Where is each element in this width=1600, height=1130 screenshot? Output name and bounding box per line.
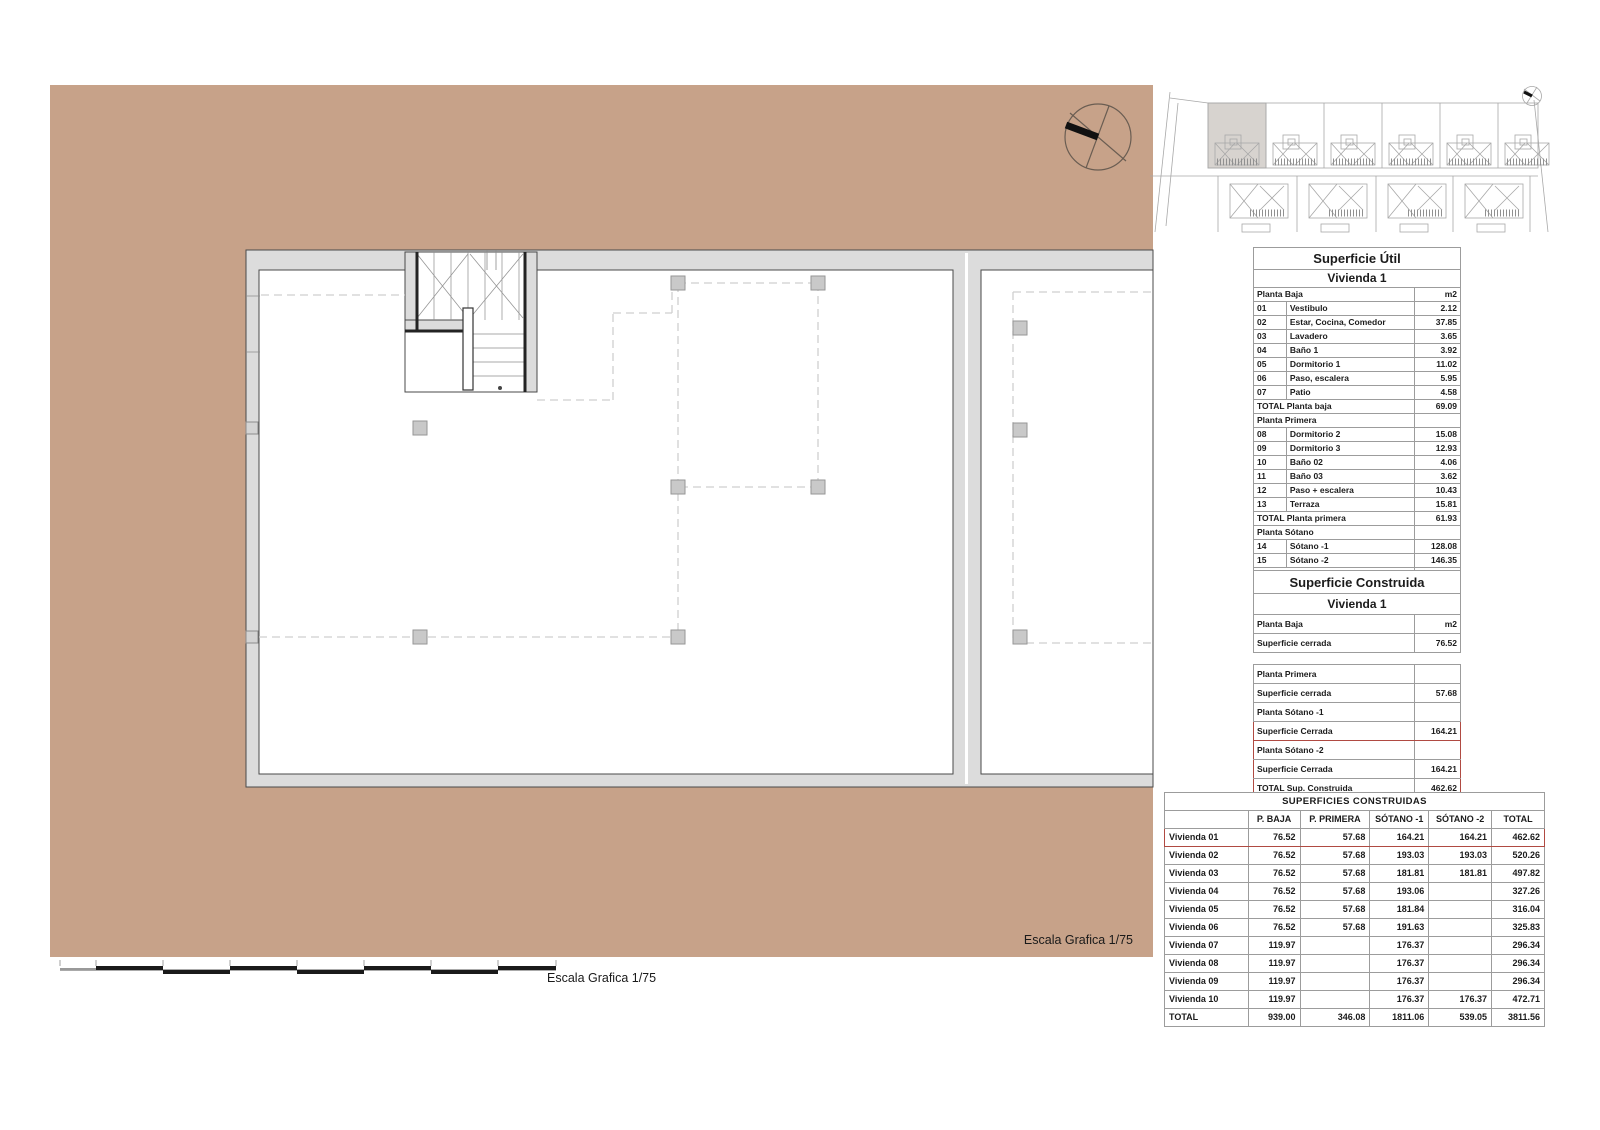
- table-cell: 1811.06: [1370, 1009, 1429, 1027]
- table-cell: P. BAJA: [1248, 811, 1300, 829]
- table-row: Planta Bajam2: [1254, 288, 1461, 302]
- table-cell: 3.62: [1415, 470, 1461, 484]
- table-cell: 01: [1254, 302, 1287, 316]
- table-cell: 539.05: [1429, 1009, 1492, 1027]
- table-row: 06Paso, escalera5.95: [1254, 372, 1461, 386]
- table-cell: Vivienda 1: [1254, 594, 1461, 615]
- table-row: 13Terraza15.81: [1254, 498, 1461, 512]
- stair-handrail: [463, 308, 473, 390]
- table-cell: 119.97: [1248, 955, 1300, 973]
- table-row: [1254, 653, 1461, 665]
- table-cell: 181.81: [1370, 865, 1429, 883]
- table-cell: 57.68: [1300, 901, 1370, 919]
- table-cell: 76.52: [1248, 883, 1300, 901]
- table-row: 05Dormitorio 111.02: [1254, 358, 1461, 372]
- table-cell: [1300, 955, 1370, 973]
- table-cell: 11.02: [1415, 358, 1461, 372]
- table-row: Vivienda 0276.5257.68193.03193.03520.26: [1165, 847, 1545, 865]
- table-cell: 11: [1254, 470, 1287, 484]
- table-cell: Paso, escalera: [1286, 372, 1414, 386]
- table-row: Planta Sótano -1: [1254, 703, 1461, 722]
- table-cell: Superficie Construida: [1254, 571, 1461, 594]
- table-row: Vivienda 0176.5257.68164.21164.21462.62: [1165, 829, 1545, 847]
- table-cell: 327.26: [1492, 883, 1545, 901]
- table-cell: SÓTANO -1: [1370, 811, 1429, 829]
- table-cell: Patio: [1286, 386, 1414, 400]
- scale-label-inner: Escala Grafica 1/75: [1003, 933, 1133, 947]
- table-cell: 61.93: [1415, 512, 1461, 526]
- table-row: Superficie Útil: [1254, 248, 1461, 270]
- table-cell: TOTAL Planta primera: [1254, 512, 1415, 526]
- table-cell: [1429, 973, 1492, 991]
- table-cell: Baño 1: [1286, 344, 1414, 358]
- table-cell: [1415, 414, 1461, 428]
- table-cell: SUPERFICIES CONSTRUIDAS: [1165, 793, 1545, 811]
- table-cell: 76.52: [1248, 901, 1300, 919]
- table-cell: Planta Sótano -1: [1254, 703, 1415, 722]
- table-cell: 462.62: [1492, 829, 1545, 847]
- table-cell: 316.04: [1492, 901, 1545, 919]
- table-cell: 176.37: [1370, 937, 1429, 955]
- table-cell: 191.63: [1370, 919, 1429, 937]
- table-cell: 176.37: [1370, 955, 1429, 973]
- table-cell: [1165, 811, 1249, 829]
- table-cell: [1429, 919, 1492, 937]
- highlighted-unit: [1208, 103, 1266, 168]
- table-cell: Paso + escalera: [1286, 484, 1414, 498]
- table-cell: 37.85: [1415, 316, 1461, 330]
- table-cell: m2: [1415, 615, 1461, 634]
- table-cell: P. PRIMERA: [1300, 811, 1370, 829]
- graphic-scale-bar: [60, 960, 556, 974]
- table-cell: Vivienda 04: [1165, 883, 1249, 901]
- table-cell: [1429, 955, 1492, 973]
- table-cell: Planta Primera: [1254, 414, 1415, 428]
- table-cell: 176.37: [1429, 991, 1492, 1009]
- table-cell: Superficie cerrada: [1254, 684, 1415, 703]
- table-cell: [1300, 937, 1370, 955]
- table-cell: Baño 02: [1286, 456, 1414, 470]
- table-cell: 2.12: [1415, 302, 1461, 316]
- table-cell: Dormitorio 1: [1286, 358, 1414, 372]
- table-cell: Vivienda 07: [1165, 937, 1249, 955]
- table-cell: 146.35: [1415, 554, 1461, 568]
- table-cell: 119.97: [1248, 973, 1300, 991]
- table-cell: 12: [1254, 484, 1287, 498]
- table-row: Planta Primera: [1254, 665, 1461, 684]
- table-cell: 296.34: [1492, 973, 1545, 991]
- table-row: Vivienda 0576.5257.68181.84 316.04: [1165, 901, 1545, 919]
- table-cell: [1429, 901, 1492, 919]
- table-cell: Vivienda 10: [1165, 991, 1249, 1009]
- table-cell: 12.93: [1415, 442, 1461, 456]
- table-cell: 15.81: [1415, 498, 1461, 512]
- table-cell: TOTAL: [1492, 811, 1545, 829]
- table-cell: Sótano -2: [1286, 554, 1414, 568]
- table-cell: m2: [1415, 288, 1461, 302]
- table-cell: Vivienda 1: [1254, 270, 1461, 288]
- table-cell: Estar, Cocina, Comedor: [1286, 316, 1414, 330]
- table-row: Vivienda 0676.5257.68191.63 325.83: [1165, 919, 1545, 937]
- table-row: 03Lavadero3.65: [1254, 330, 1461, 344]
- table-cell: 181.81: [1429, 865, 1492, 883]
- table-row: Planta Primera: [1254, 414, 1461, 428]
- table-cell: 4.58: [1415, 386, 1461, 400]
- table-cell: 76.52: [1248, 847, 1300, 865]
- table-row: TOTAL Planta baja69.09: [1254, 400, 1461, 414]
- table-cell: 325.83: [1492, 919, 1545, 937]
- table-cell: Dormitorio 3: [1286, 442, 1414, 456]
- table-cell: 05: [1254, 358, 1287, 372]
- table-cell: 3.65: [1415, 330, 1461, 344]
- basement-floor-plan: [246, 250, 1153, 787]
- floor-plan-panel-right: [981, 270, 1153, 774]
- table-cell: Superficie Cerrada: [1254, 760, 1415, 779]
- table-cell: Vivienda 05: [1165, 901, 1249, 919]
- table-cell: 164.21: [1415, 722, 1461, 741]
- table-row: Vivienda 07119.97 176.37 296.34: [1165, 937, 1545, 955]
- table-cell: 07: [1254, 386, 1287, 400]
- table-row: Vivienda 0476.5257.68193.06 327.26: [1165, 883, 1545, 901]
- table-cell: 15: [1254, 554, 1287, 568]
- table-cell: 497.82: [1492, 865, 1545, 883]
- table-cell: 57.68: [1300, 847, 1370, 865]
- table-row: TOTAL939.00346.081811.06539.053811.56: [1165, 1009, 1545, 1027]
- table-row: Superficie Cerrada164.21: [1254, 722, 1461, 741]
- table-cell: 57.68: [1300, 865, 1370, 883]
- table-cell: 13: [1254, 498, 1287, 512]
- table-cell: Dormitorio 2: [1286, 428, 1414, 442]
- table-cell: Planta Sótano -2: [1254, 741, 1415, 760]
- site-plan-overview: [1150, 87, 1549, 233]
- table-row: 04Baño 13.92: [1254, 344, 1461, 358]
- superficies-construidas-table: SUPERFICIES CONSTRUIDAS P. BAJAP. PRIMER…: [1164, 792, 1545, 1027]
- table-cell: 296.34: [1492, 937, 1545, 955]
- table-row: 10Baño 024.06: [1254, 456, 1461, 470]
- table-cell: Lavadero: [1286, 330, 1414, 344]
- table-cell: 76.52: [1415, 634, 1461, 653]
- table-cell: Planta Baja: [1254, 288, 1415, 302]
- table-cell: 08: [1254, 428, 1287, 442]
- table-cell: Superficie Útil: [1254, 248, 1461, 270]
- table-cell: Vivienda 02: [1165, 847, 1249, 865]
- table-row: Vivienda 10119.97 176.37176.37472.71: [1165, 991, 1545, 1009]
- table-cell: 176.37: [1370, 991, 1429, 1009]
- table-row: 07Patio4.58: [1254, 386, 1461, 400]
- table-cell: 69.09: [1415, 400, 1461, 414]
- table-row: 08Dormitorio 215.08: [1254, 428, 1461, 442]
- table-cell: [1415, 526, 1461, 540]
- table-row: Vivienda 09119.97 176.37 296.34: [1165, 973, 1545, 991]
- table-cell: [1415, 665, 1461, 684]
- table-row: 12Paso + escalera10.43: [1254, 484, 1461, 498]
- table-row: Vivienda 1: [1254, 270, 1461, 288]
- table-cell: 164.21: [1370, 829, 1429, 847]
- table-cell: Vivienda 08: [1165, 955, 1249, 973]
- floor-plan-panel-left: [259, 270, 953, 774]
- table-row: Superficie cerrada57.68: [1254, 684, 1461, 703]
- table-row: Planta Sótano: [1254, 526, 1461, 540]
- table-cell: 57.68: [1415, 684, 1461, 703]
- table-cell: 4.06: [1415, 456, 1461, 470]
- table-cell: 193.06: [1370, 883, 1429, 901]
- table-cell: Planta Sótano: [1254, 526, 1415, 540]
- table-cell: 119.97: [1248, 991, 1300, 1009]
- table-cell: 14: [1254, 540, 1287, 554]
- table-row: Superficie Construida: [1254, 571, 1461, 594]
- table-cell: [1254, 653, 1461, 665]
- table-cell: 164.21: [1429, 829, 1492, 847]
- table-row: Superficie cerrada76.52: [1254, 634, 1461, 653]
- table-cell: 3.92: [1415, 344, 1461, 358]
- table-cell: 193.03: [1429, 847, 1492, 865]
- table-cell: Terraza: [1286, 498, 1414, 512]
- table-row: 15Sótano -2146.35: [1254, 554, 1461, 568]
- table-cell: [1429, 883, 1492, 901]
- table-cell: Vivienda 03: [1165, 865, 1249, 883]
- table-cell: Baño 03: [1286, 470, 1414, 484]
- table-cell: 10: [1254, 456, 1287, 470]
- table-row: Vivienda 0376.5257.68181.81181.81497.82: [1165, 865, 1545, 883]
- table-row: 02Estar, Cocina, Comedor37.85: [1254, 316, 1461, 330]
- table-cell: 193.03: [1370, 847, 1429, 865]
- table-row: 11Baño 033.62: [1254, 470, 1461, 484]
- north-arrow-icon: [1065, 104, 1131, 170]
- table-cell: 15.08: [1415, 428, 1461, 442]
- table-cell: Planta Primera: [1254, 665, 1415, 684]
- table-cell: SÓTANO -2: [1429, 811, 1492, 829]
- table-cell: Planta Baja: [1254, 615, 1415, 634]
- plan-sheet: Superficie ÚtilVivienda 1Planta Bajam201…: [0, 0, 1600, 1130]
- table-cell: 939.00: [1248, 1009, 1300, 1027]
- table-cell: 06: [1254, 372, 1287, 386]
- table-cell: 57.68: [1300, 883, 1370, 901]
- table-row: Superficie Cerrada164.21: [1254, 760, 1461, 779]
- table-cell: 57.68: [1300, 919, 1370, 937]
- table-cell: 03: [1254, 330, 1287, 344]
- table-row: Planta Sótano -2: [1254, 741, 1461, 760]
- table-cell: 10.43: [1415, 484, 1461, 498]
- table-cell: [1429, 937, 1492, 955]
- table-row: Vivienda 08119.97 176.37 296.34: [1165, 955, 1545, 973]
- party-wall-seam: [965, 253, 968, 784]
- table-row: Planta Bajam2: [1254, 615, 1461, 634]
- scale-label-bottom: Escala Grafica 1/75: [547, 971, 656, 985]
- table-cell: Sótano -1: [1286, 540, 1414, 554]
- table-row: 09Dormitorio 312.93: [1254, 442, 1461, 456]
- table-cell: 164.21: [1415, 760, 1461, 779]
- table-cell: 128.08: [1415, 540, 1461, 554]
- table-cell: 296.34: [1492, 955, 1545, 973]
- staircase: [405, 252, 537, 392]
- superficie-construida-table: Superficie ConstruidaVivienda 1Planta Ba…: [1253, 570, 1461, 798]
- table-row: Vivienda 1: [1254, 594, 1461, 615]
- table-cell: 5.95: [1415, 372, 1461, 386]
- table-cell: 09: [1254, 442, 1287, 456]
- table-cell: [1415, 703, 1461, 722]
- table-row: SUPERFICIES CONSTRUIDAS: [1165, 793, 1545, 811]
- table-cell: 04: [1254, 344, 1287, 358]
- table-cell: Vestibulo: [1286, 302, 1414, 316]
- table-row: 01Vestibulo2.12: [1254, 302, 1461, 316]
- table-row: 14Sótano -1128.08: [1254, 540, 1461, 554]
- table-cell: 3811.56: [1492, 1009, 1545, 1027]
- table-cell: 119.97: [1248, 937, 1300, 955]
- table-cell: 76.52: [1248, 829, 1300, 847]
- table-cell: 76.52: [1248, 919, 1300, 937]
- table-cell: Vivienda 06: [1165, 919, 1249, 937]
- table-cell: 181.84: [1370, 901, 1429, 919]
- table-row: TOTAL Planta primera61.93: [1254, 512, 1461, 526]
- table-cell: 346.08: [1300, 1009, 1370, 1027]
- table-cell: TOTAL: [1165, 1009, 1249, 1027]
- table-cell: [1300, 973, 1370, 991]
- table-cell: 02: [1254, 316, 1287, 330]
- table-cell: [1300, 991, 1370, 1009]
- table-cell: Vivienda 01: [1165, 829, 1249, 847]
- superficie-util-table: Superficie ÚtilVivienda 1Planta Bajam201…: [1253, 247, 1461, 582]
- table-row: P. BAJAP. PRIMERASÓTANO -1SÓTANO -2TOTAL: [1165, 811, 1545, 829]
- table-cell: Superficie cerrada: [1254, 634, 1415, 653]
- table-cell: 76.52: [1248, 865, 1300, 883]
- table-cell: Vivienda 09: [1165, 973, 1249, 991]
- table-cell: 520.26: [1492, 847, 1545, 865]
- table-cell: 57.68: [1300, 829, 1370, 847]
- table-cell: 472.71: [1492, 991, 1545, 1009]
- table-cell: 176.37: [1370, 973, 1429, 991]
- table-cell: TOTAL Planta baja: [1254, 400, 1415, 414]
- table-cell: [1415, 741, 1461, 760]
- table-cell: Superficie Cerrada: [1254, 722, 1415, 741]
